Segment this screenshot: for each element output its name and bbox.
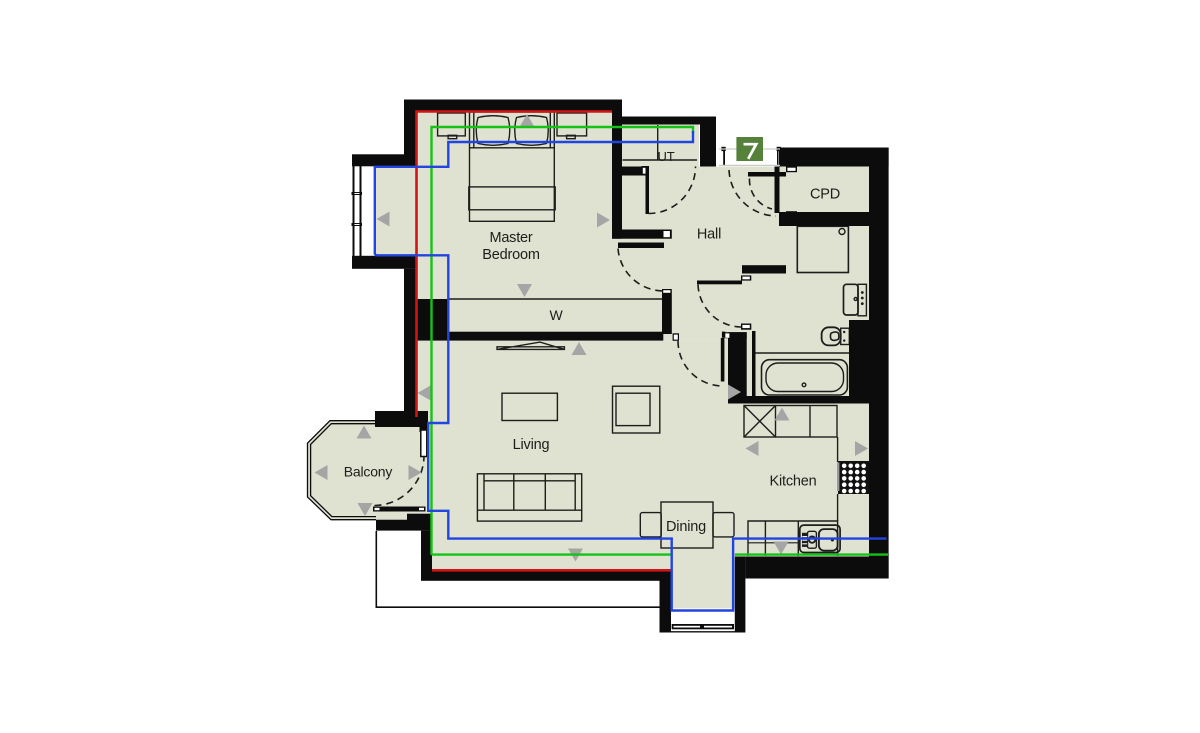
svg-text:Dining: Dining xyxy=(666,519,706,535)
svg-text:Hall: Hall xyxy=(697,227,721,243)
svg-text:Bedroom: Bedroom xyxy=(482,247,540,263)
svg-text:UT: UT xyxy=(658,149,675,164)
svg-text:W: W xyxy=(549,307,563,323)
svg-text:Balcony: Balcony xyxy=(344,464,393,480)
svg-text:CPD: CPD xyxy=(810,187,840,203)
svg-text:Master: Master xyxy=(489,230,532,246)
svg-text:Living: Living xyxy=(513,437,550,453)
svg-text:Kitchen: Kitchen xyxy=(770,474,817,490)
